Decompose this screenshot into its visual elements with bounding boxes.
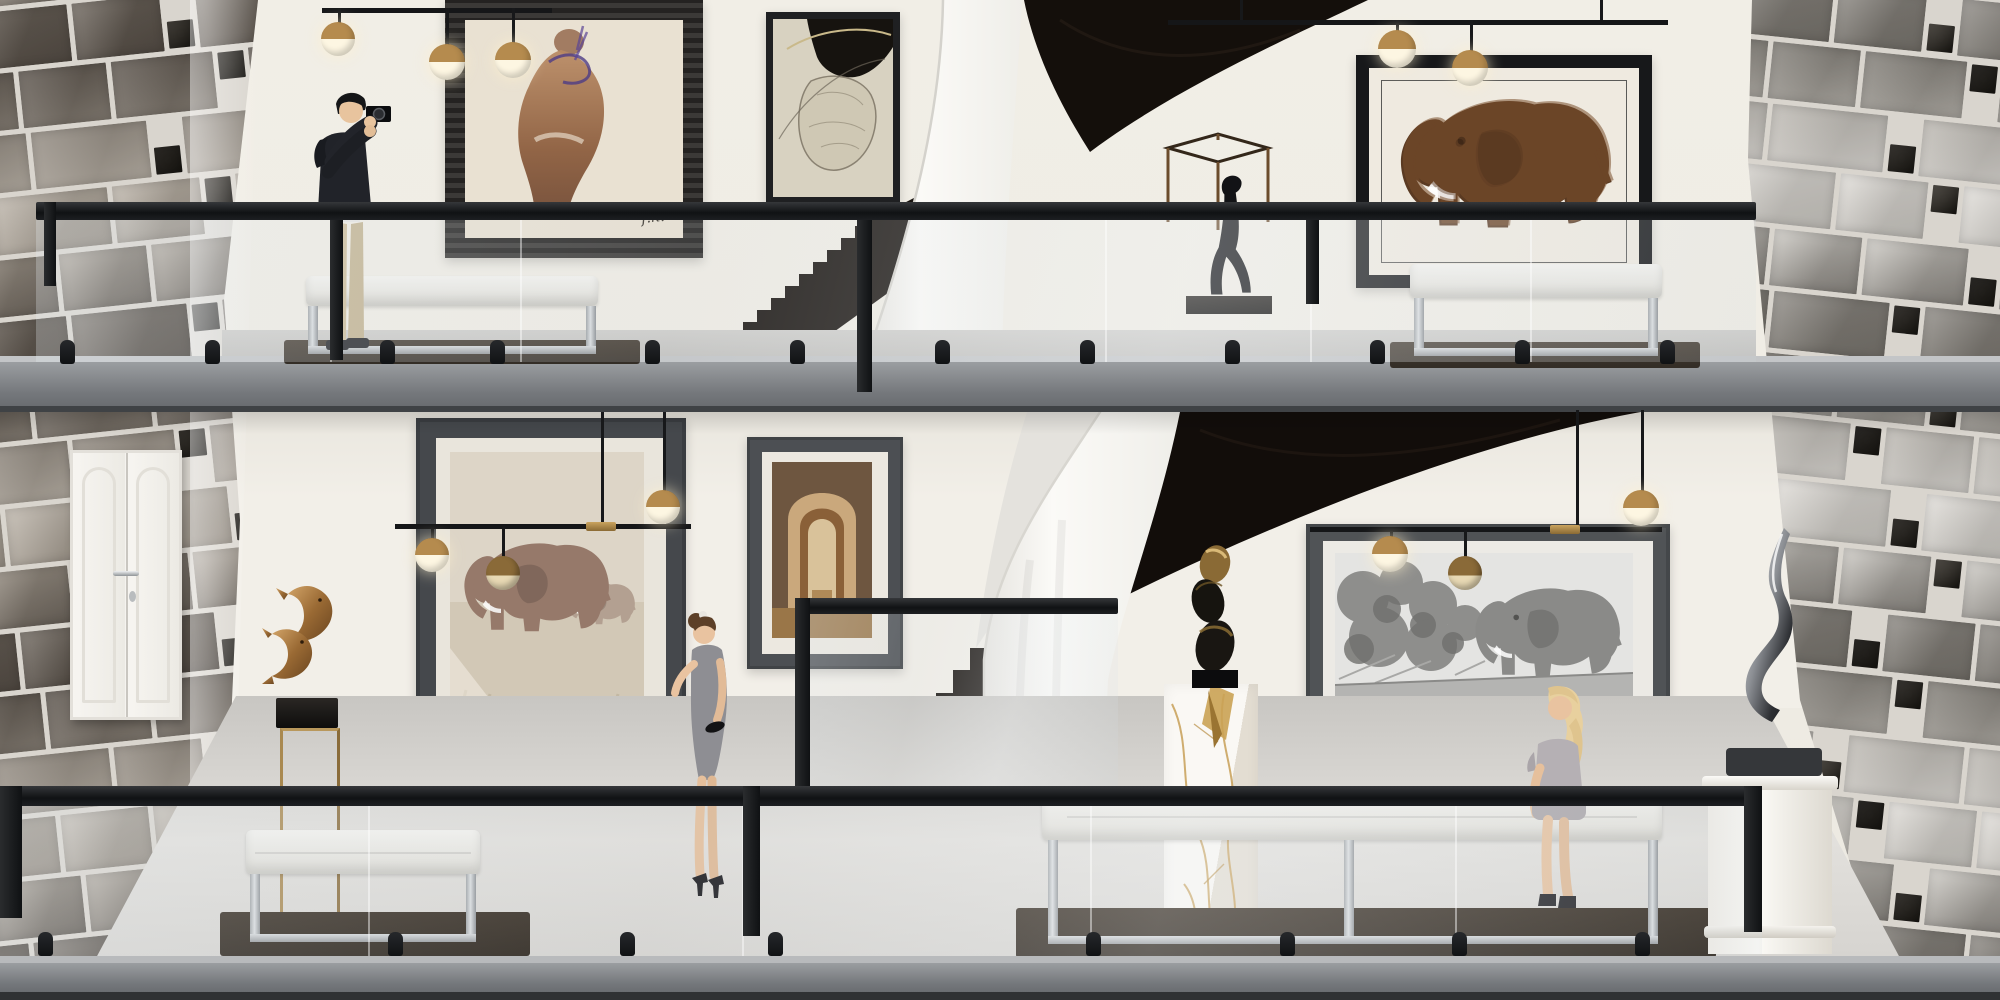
railing-base-fitting xyxy=(790,340,805,364)
upper-railing-rail xyxy=(36,202,1756,220)
railing-base-fitting xyxy=(1635,932,1650,956)
stair-void-rail xyxy=(795,598,1118,614)
bottom-slab-lip xyxy=(0,956,2000,963)
globe-lamp xyxy=(1448,556,1482,590)
railing-base-fitting xyxy=(380,340,395,364)
bottom-slab xyxy=(0,963,2000,992)
railing-base-fitting xyxy=(1086,932,1101,956)
railing-base-fitting xyxy=(490,340,505,364)
globe-lamp xyxy=(1452,50,1488,86)
railing-base-fitting xyxy=(1452,932,1467,956)
railing-post xyxy=(0,786,22,918)
bronze-dolphins xyxy=(258,586,342,702)
globe-lamp xyxy=(495,42,531,78)
mid-slab-shadow xyxy=(0,412,2000,434)
railing-base-fitting xyxy=(645,340,660,364)
pebble-stack-sculpture xyxy=(1180,544,1246,694)
chrome-wave-sculpture xyxy=(1722,524,1826,780)
dolphin-plinth xyxy=(276,698,338,728)
railing-post xyxy=(330,220,343,360)
foreground-rail xyxy=(0,786,1762,806)
globe-lamp xyxy=(646,490,680,524)
railing-post xyxy=(44,202,56,286)
glass-panel-seam xyxy=(368,806,370,956)
railing-base-fitting xyxy=(935,340,950,364)
glass-panel-seam xyxy=(1530,220,1532,362)
globe-lamp xyxy=(429,44,465,80)
railing-base-fitting xyxy=(388,932,403,956)
bottom-slab-edge xyxy=(0,992,2000,1000)
railing-post xyxy=(1744,786,1762,932)
stair-void-glass xyxy=(795,614,1118,790)
railing-post xyxy=(795,598,810,788)
railing-base-fitting xyxy=(1080,340,1095,364)
railing-base-fitting xyxy=(1370,340,1385,364)
railing-base-fitting xyxy=(768,932,783,956)
railing-base-fitting xyxy=(1660,340,1675,364)
railing-base-fitting xyxy=(1225,340,1240,364)
globe-lamp xyxy=(486,556,520,590)
railing-base-fitting xyxy=(1515,340,1530,364)
railing-base-fitting xyxy=(620,932,635,956)
railing-base-fitting xyxy=(38,932,53,956)
railing-post xyxy=(1306,220,1319,304)
foreground-glass xyxy=(0,806,1762,956)
globe-lamp xyxy=(1372,536,1408,572)
globe-lamp xyxy=(321,22,355,56)
glass-panel-seam xyxy=(1105,220,1107,362)
railing-post xyxy=(743,786,760,936)
upper-railing-glass xyxy=(36,220,1756,362)
globe-lamp xyxy=(415,538,449,572)
railing-base-fitting xyxy=(60,340,75,364)
glass-panel-seam xyxy=(520,220,522,362)
railing-base-fitting xyxy=(1280,932,1295,956)
globe-lamp xyxy=(1378,30,1416,68)
railing-base-fitting xyxy=(205,340,220,364)
globe-lamp xyxy=(1623,490,1659,526)
railing-post xyxy=(857,220,872,392)
gallery-scene: f.k. xyxy=(0,0,2000,1000)
